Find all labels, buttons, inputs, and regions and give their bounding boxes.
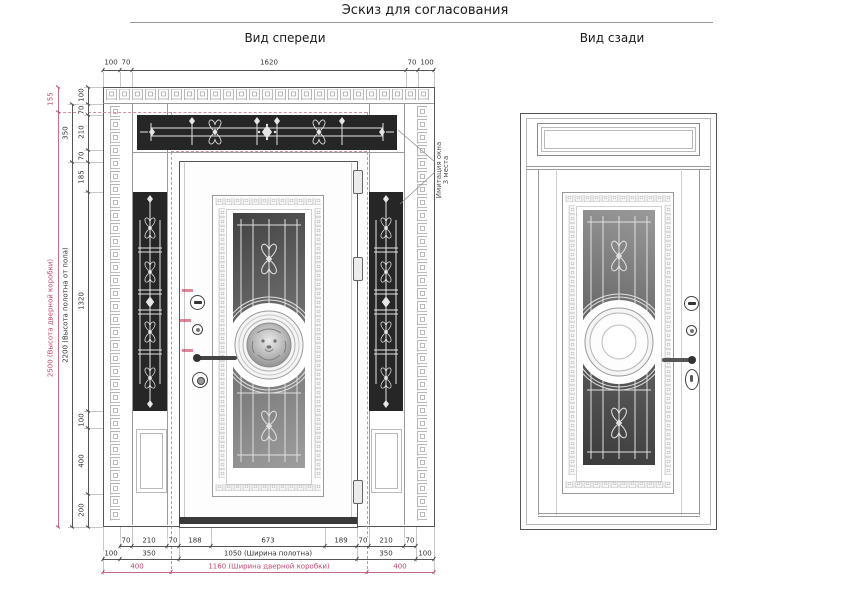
dim-label: 350 xyxy=(378,551,393,558)
dim-label: 1620 xyxy=(259,60,279,67)
greek-key-panel-right: 回回回回回回回回回回回回回回回回回回回回回回回回回回回回回回 xyxy=(661,205,671,481)
frame-line xyxy=(167,103,168,525)
frame-line xyxy=(103,103,434,104)
side-window-left xyxy=(133,192,167,411)
dim-line-top xyxy=(103,70,435,71)
peephole-icon xyxy=(686,325,697,336)
dim-label: 1320 xyxy=(79,291,86,311)
leaf-stile-line xyxy=(184,163,185,523)
dim-label: 188 xyxy=(187,538,202,545)
back-leaf-top xyxy=(526,169,710,170)
escutcheon-icon xyxy=(192,372,208,388)
back-transom-panel xyxy=(537,123,700,156)
keyhole-icon xyxy=(190,295,205,310)
leaf-stile-line xyxy=(351,163,352,523)
frame-boundary-dashline xyxy=(367,112,368,574)
dim-label: 70 xyxy=(168,538,179,545)
red-annotation-mark xyxy=(180,319,191,322)
dim-label: 2200 (Высота полотна от пола) xyxy=(63,246,70,364)
dim-label: 100 xyxy=(103,551,118,558)
dim-label-pink: 1160 (Ширина дверной коробки) xyxy=(207,564,330,571)
dim-label: 185 xyxy=(79,169,86,184)
greek-key-panel-bottom: 回回回回回回回回回回回回 xyxy=(565,481,671,491)
back-leaf-bottom xyxy=(538,516,700,517)
dim-label: 210 xyxy=(378,538,393,545)
hinge-icon xyxy=(353,257,363,281)
forged-grille-transom-icon xyxy=(137,115,397,150)
dim-label-pink: 2500 (Высота дверной коробки) xyxy=(48,258,55,378)
dim-label: 200 xyxy=(79,502,86,517)
greek-key-panel-bottom: 回回回回回回回回回回回回 xyxy=(215,484,321,494)
back-view-title: Вид сзади xyxy=(542,31,682,45)
dim-label: 70 xyxy=(121,60,132,67)
transom-top-dashline xyxy=(58,112,367,113)
handle-base xyxy=(688,356,696,364)
dim-label: 673 xyxy=(260,538,275,545)
dim-label: 210 xyxy=(79,124,86,139)
greek-key-top-band: 回回回回回回回回回回回回回回回回回回回回回回回回回 xyxy=(105,89,432,103)
forged-grille-side-icon xyxy=(369,192,403,411)
frame-boundary-dashline xyxy=(171,112,172,574)
lower-panel-left xyxy=(136,429,167,493)
dim-label: 70 xyxy=(79,151,86,162)
back-leaf-edge xyxy=(699,169,700,515)
dim-line-left-inner xyxy=(88,87,89,527)
front-view-title: Вид спереди xyxy=(215,31,355,45)
dim-label-pink: 400 xyxy=(392,564,407,571)
dim-label: 100 xyxy=(79,412,86,427)
window-imitation-note: Имитация окна 3 места xyxy=(436,141,450,200)
transom-window xyxy=(137,115,397,150)
dim-label-pink: 155 xyxy=(48,91,55,106)
hinge-icon xyxy=(353,170,363,194)
forged-grille-side-icon xyxy=(133,192,167,411)
dim-label: 350 xyxy=(63,125,70,140)
dim-label: 210 xyxy=(141,538,156,545)
dim-label: 100 xyxy=(79,87,86,102)
greek-key-left-pilaster: 回回回回回回回回回回回回回回回回回回回回回回回回回回回回回回回回 xyxy=(106,105,120,525)
dim-line-left-mid xyxy=(72,104,73,527)
lion-medallion xyxy=(227,303,311,387)
peephole-icon xyxy=(192,324,203,335)
back-leaf-bottom xyxy=(538,513,700,514)
greek-key-panel-top: 回回回回回回回回回回回回 xyxy=(565,195,671,205)
greek-key-panel-left: 回回回回回回回回回回回回回回回回回回回回回回回回回回回回回回 xyxy=(565,205,575,481)
dim-label-pink: 400 xyxy=(129,564,144,571)
red-annotation-mark xyxy=(182,349,193,352)
door-handle xyxy=(196,356,237,360)
back-center-panel: 回回回回回回回回回回回回 回回回回回回回回回回回回 回回回回回回回回回回回回回回… xyxy=(562,192,674,494)
dim-label: 70 xyxy=(405,538,416,545)
page-title: Эскиз для согласования xyxy=(0,3,850,18)
back-leaf-edge xyxy=(538,169,539,515)
dim-label: 70 xyxy=(407,60,418,67)
red-annotation-mark xyxy=(182,289,193,292)
dim-label: 100 xyxy=(419,60,434,67)
transom-bottom-dashline xyxy=(171,151,367,152)
back-transom-sill xyxy=(526,166,710,167)
dim-label: 100 xyxy=(417,551,432,558)
dim-label: 350 xyxy=(141,551,156,558)
dim-label: 400 xyxy=(79,453,86,468)
dim-label: 189 xyxy=(333,538,348,545)
hinge-icon xyxy=(353,480,363,504)
side-window-right xyxy=(369,192,403,411)
greek-key-panel-left: 回回回回回回回回回回回回回回回回回回回回回回回回回回回回回回 xyxy=(215,208,225,484)
greek-key-panel-right: 回回回回回回回回回回回回回回回回回回回回回回回回回回回回回回 xyxy=(311,208,321,484)
title-rule xyxy=(130,22,713,23)
greek-key-panel-top: 回回回回回回回回回回回回 xyxy=(215,198,321,208)
back-leaf-stile-line xyxy=(681,169,682,515)
escutcheon-oval-icon xyxy=(685,369,699,390)
handle-base xyxy=(193,354,201,362)
dim-line-bottom-2 xyxy=(103,559,434,560)
keyhole-icon xyxy=(684,296,699,311)
dim-line-bottom-3 xyxy=(103,572,434,573)
back-leaf-stile-line xyxy=(556,169,557,515)
drawing-sheet: Эскиз для согласования Вид спереди Вид с… xyxy=(0,0,850,600)
dim-label: 70 xyxy=(121,538,132,545)
plain-medallion xyxy=(577,300,661,384)
dim-label: 100 xyxy=(103,60,118,67)
dim-label: 70 xyxy=(358,538,369,545)
dim-line-left-outer xyxy=(58,87,59,527)
dim-label: 1050 (Ширина полотна) xyxy=(223,551,313,558)
lower-panel-right xyxy=(371,429,402,493)
transom-sill-line xyxy=(132,152,404,153)
threshold xyxy=(179,517,357,524)
front-center-panel: 回回回回回回回回回回回回 回回回回回回回回回回回回 回回回回回回回回回回回回回回… xyxy=(212,195,324,497)
